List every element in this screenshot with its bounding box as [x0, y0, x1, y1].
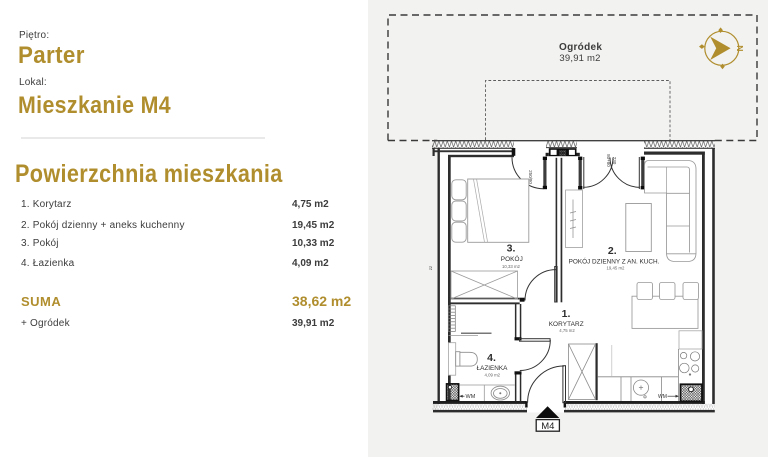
svg-text:WM: WM — [658, 394, 667, 400]
svg-text:80+80: 80+80 — [606, 154, 611, 167]
svg-text:230: 230 — [612, 157, 617, 165]
svg-text:2.: 2. — [608, 245, 617, 257]
svg-text:WM: WM — [466, 394, 476, 400]
svg-text:ŁAZIENKA: ŁAZIENKA — [477, 365, 509, 372]
svg-text:39,91 m2: 39,91 m2 — [559, 53, 600, 64]
svg-text:4,75 m2: 4,75 m2 — [559, 328, 575, 333]
svg-text:10,33 m2: 10,33 m2 — [502, 264, 521, 269]
svg-text:POKÓJ: POKÓJ — [501, 254, 523, 263]
svg-text:Ogródek: Ogródek — [559, 42, 602, 53]
svg-text:M4: M4 — [541, 421, 554, 432]
svg-text:3.: 3. — [507, 243, 516, 255]
svg-text:19,45 m2: 19,45 m2 — [607, 266, 626, 271]
svg-text:4,09 m2: 4,09 m2 — [485, 373, 501, 378]
svg-text:1.: 1. — [562, 308, 571, 320]
svg-text:POKÓJ DZIENNY Z AN. KUCH.: POKÓJ DZIENNY Z AN. KUCH. — [569, 257, 660, 266]
svg-text:N: N — [735, 45, 745, 51]
svg-text:90/90: 90/90 — [559, 152, 566, 156]
svg-text:zz: zz — [428, 266, 433, 270]
svg-text:4.: 4. — [487, 352, 496, 364]
